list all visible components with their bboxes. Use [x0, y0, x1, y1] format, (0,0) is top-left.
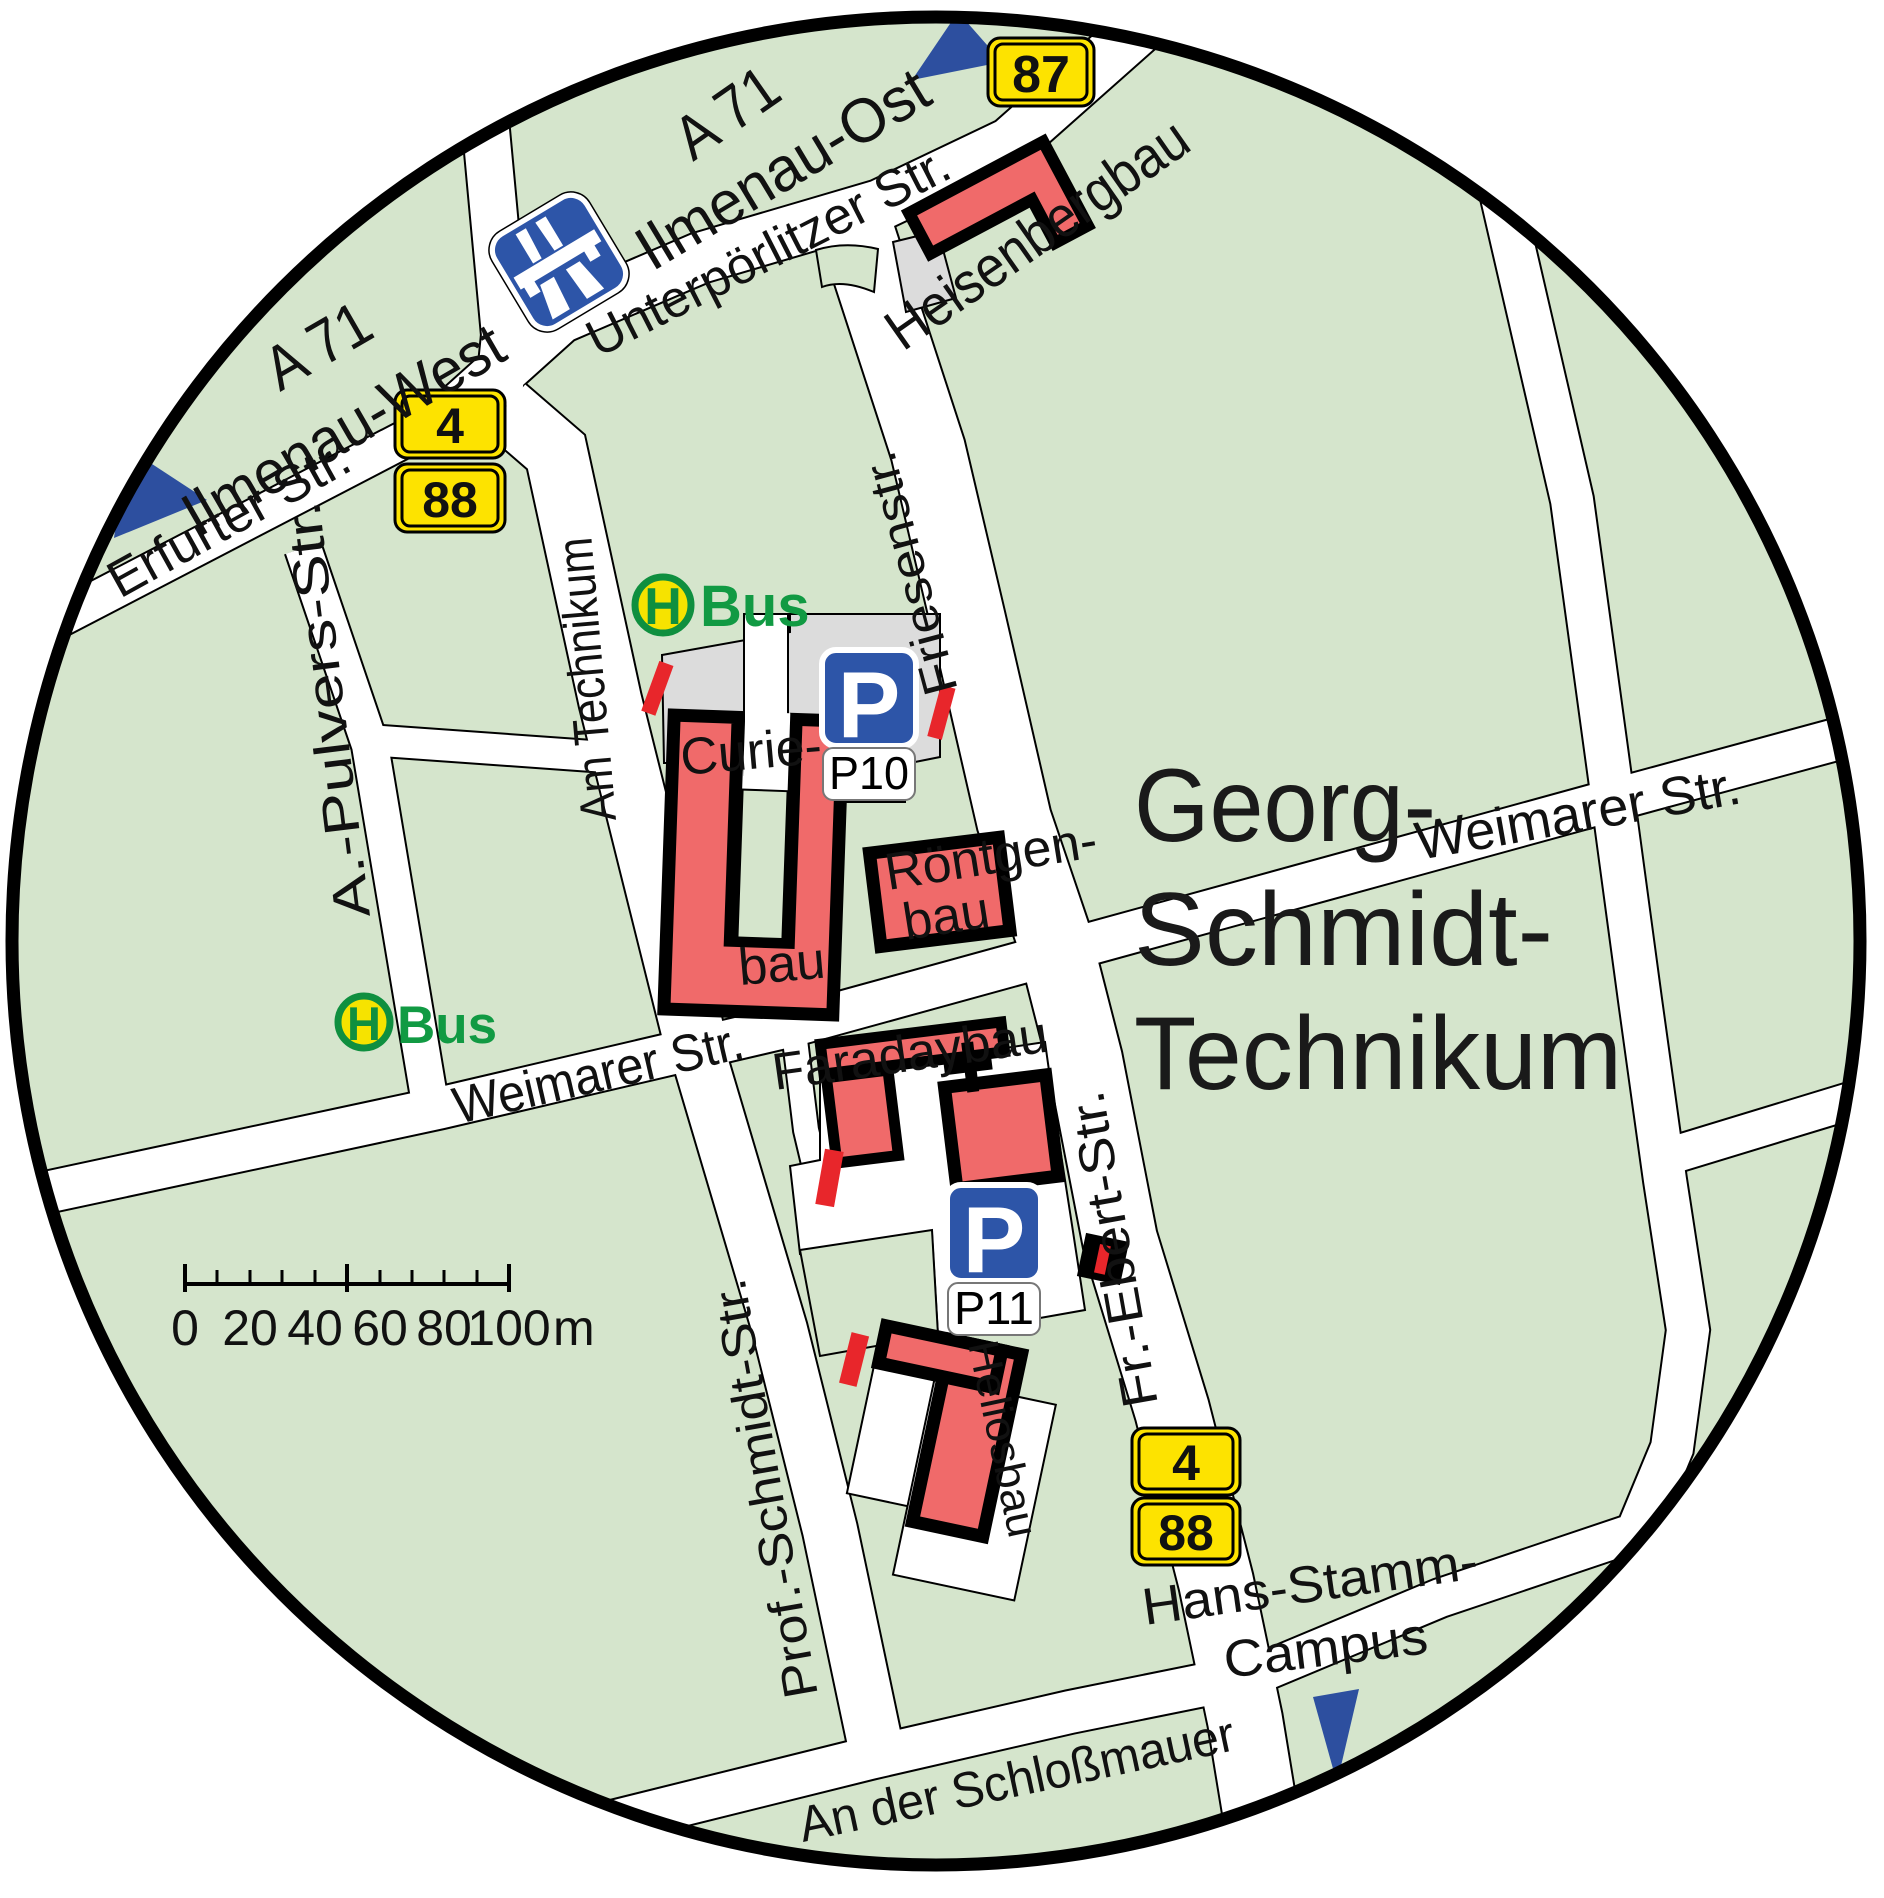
svg-text:Technikum: Technikum [1134, 996, 1622, 1112]
svg-text:Bus: Bus [700, 574, 810, 639]
svg-text:Schmidt-: Schmidt- [1134, 872, 1553, 988]
svg-text:bau: bau [736, 932, 827, 997]
svg-text:P: P [838, 652, 901, 757]
svg-text:4: 4 [1172, 1435, 1200, 1491]
svg-text:Bus: Bus [397, 996, 497, 1055]
svg-text:Georg-: Georg- [1134, 748, 1436, 864]
svg-text:H: H [644, 578, 682, 636]
svg-text:0: 0 [171, 1300, 199, 1356]
svg-text:88: 88 [1158, 1505, 1214, 1561]
svg-text:88: 88 [422, 472, 478, 528]
svg-text:m: m [553, 1300, 595, 1356]
svg-text:20: 20 [222, 1300, 278, 1356]
svg-text:P10: P10 [829, 747, 909, 799]
svg-text:87: 87 [1012, 46, 1070, 104]
svg-text:H: H [347, 997, 381, 1050]
svg-text:100: 100 [467, 1300, 550, 1356]
svg-text:P: P [963, 1187, 1026, 1292]
svg-text:40: 40 [287, 1300, 343, 1356]
svg-text:P11: P11 [954, 1282, 1034, 1334]
svg-text:Curie-: Curie- [678, 717, 824, 787]
svg-text:80: 80 [416, 1300, 472, 1356]
svg-text:60: 60 [352, 1300, 408, 1356]
